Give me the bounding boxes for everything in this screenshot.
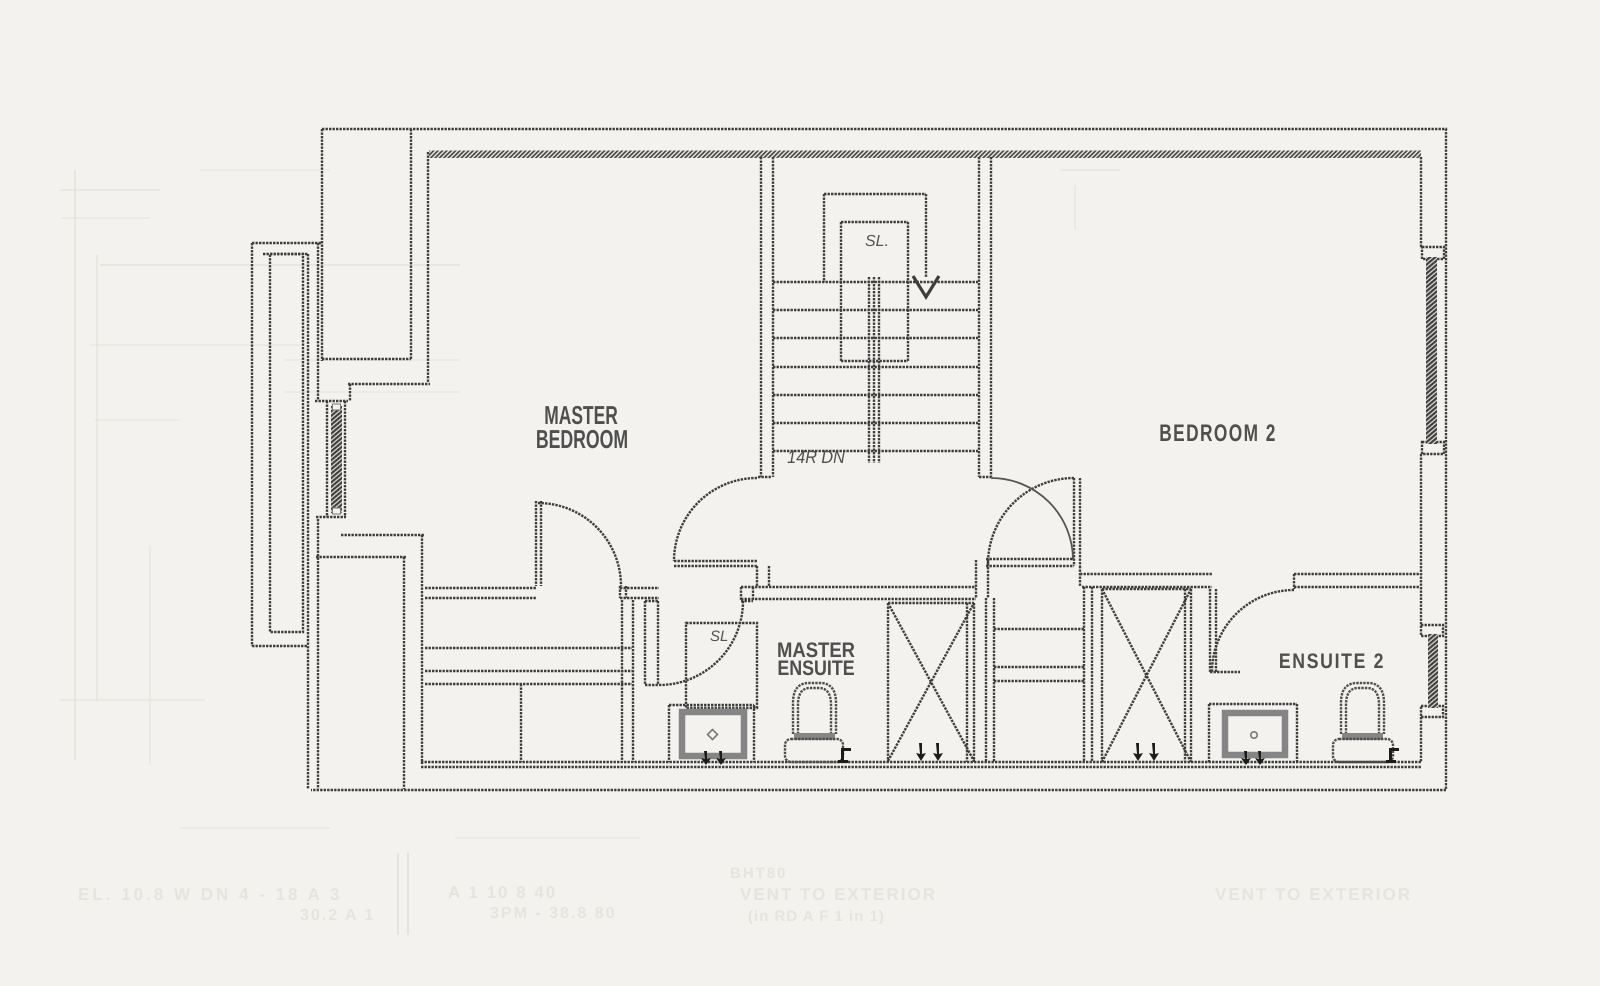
svg-text:EL. 10.8 W DN 4 - 18 A 3: EL. 10.8 W DN 4 - 18 A 3 [78,885,342,904]
svg-text:(in RD A F 1 in 1): (in RD A F 1 in 1) [748,908,885,925]
svg-text:A 1 10 8 40: A 1 10 8 40 [448,883,557,902]
svg-text:SL: SL [710,628,728,645]
svg-text:30.2 A 1: 30.2 A 1 [300,907,375,924]
svg-text:ENSUITE: ENSUITE [777,657,854,680]
svg-text:BEDROOM: BEDROOM [536,424,628,454]
svg-text:14R DN: 14R DN [787,447,846,467]
svg-text:SL.: SL. [865,233,889,250]
svg-text:VENT TO EXTERIOR: VENT TO EXTERIOR [740,885,937,904]
svg-text:BEDROOM 2: BEDROOM 2 [1159,420,1277,447]
svg-text:ENSUITE 2: ENSUITE 2 [1279,650,1385,673]
svg-text:BHT80: BHT80 [730,865,788,882]
svg-text:VENT TO EXTERIOR: VENT TO EXTERIOR [1215,885,1412,904]
svg-text:3PM - 38.8 80: 3PM - 38.8 80 [490,905,617,922]
